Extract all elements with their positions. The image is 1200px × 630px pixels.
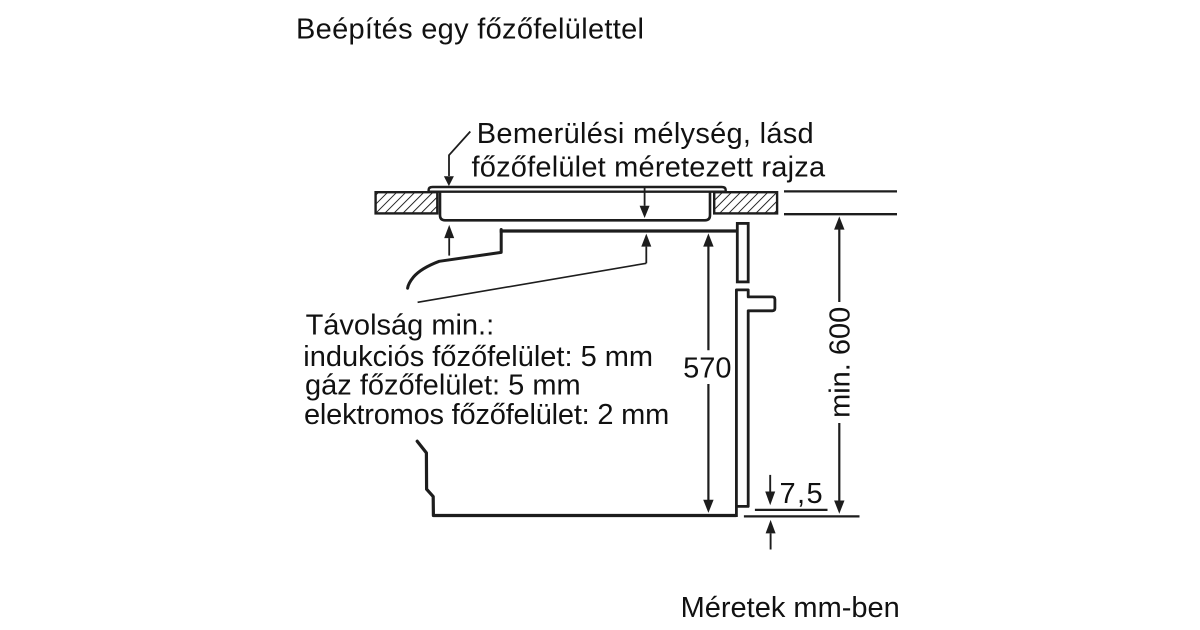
- svg-text:min. 600: min. 600: [825, 307, 857, 418]
- svg-text:Méretek mm-ben: Méretek mm-ben: [681, 592, 900, 624]
- svg-text:elektromos főzőfelület: 2 mm: elektromos főzőfelület: 2 mm: [304, 399, 669, 431]
- svg-text:Távolság min.:: Távolság min.:: [306, 309, 495, 341]
- svg-text:Beépítés egy főzőfelülettel: Beépítés egy főzőfelülettel: [296, 13, 644, 45]
- svg-text:Bemerülési mélység, lásd: Bemerülési mélység, lásd: [477, 118, 814, 150]
- svg-text:gáz főzőfelület: 5 mm: gáz főzőfelület: 5 mm: [305, 370, 581, 402]
- svg-text:indukciós főzőfelület: 5 mm: indukciós főzőfelület: 5 mm: [303, 341, 653, 373]
- svg-text:7,5: 7,5: [780, 478, 825, 510]
- svg-text:főzőfelület méretezett rajza: főzőfelület méretezett rajza: [472, 151, 826, 183]
- svg-text:570: 570: [683, 352, 731, 384]
